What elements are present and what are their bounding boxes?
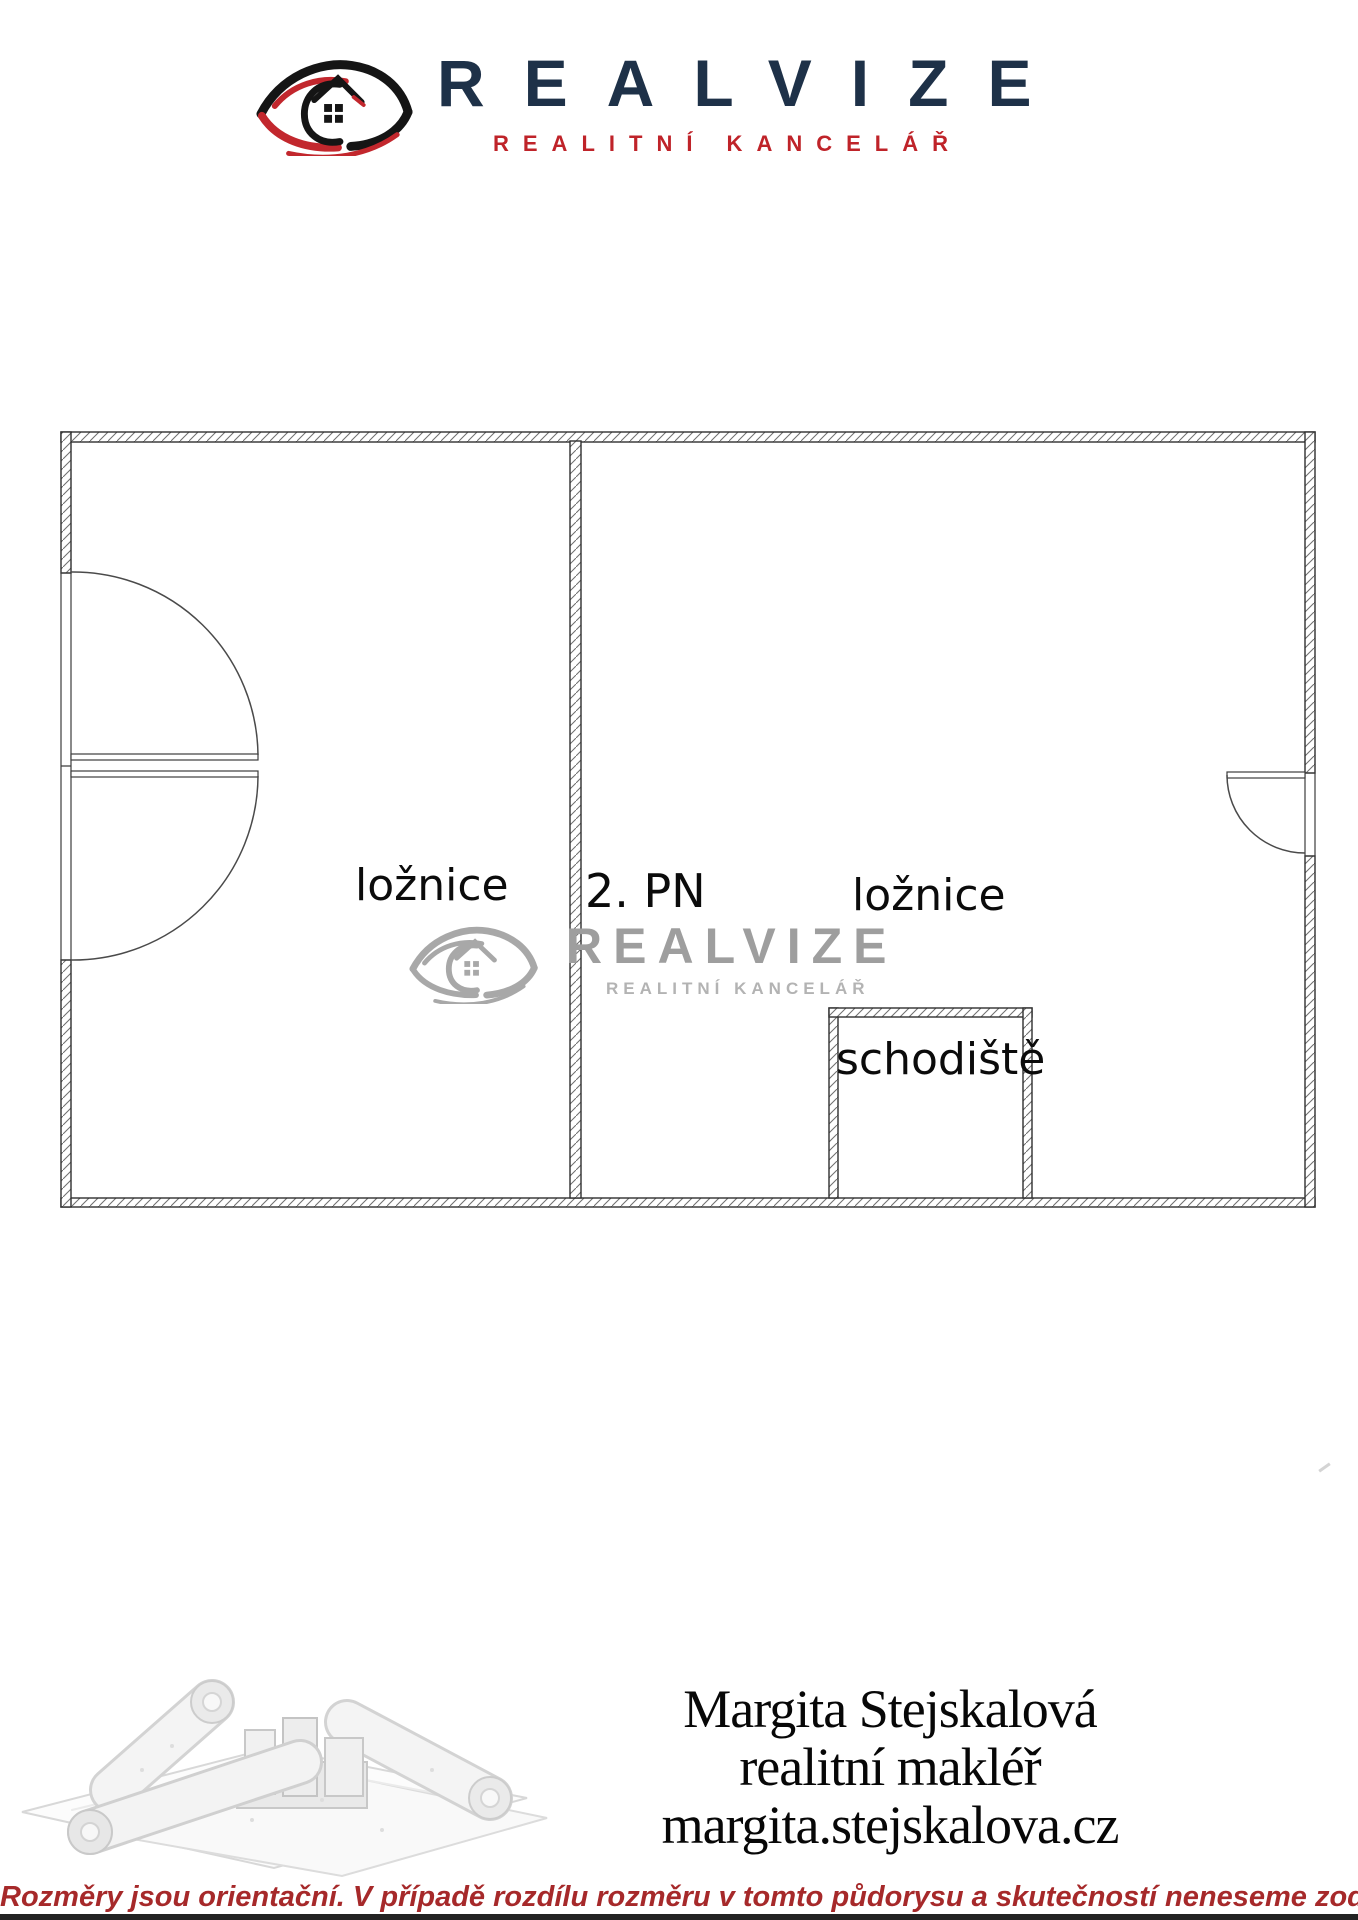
disclaimer-text: Rozměry jsou orientační. V případě rozdí… (0, 1881, 1358, 1913)
agent-name: Margita Stejskalová (520, 1680, 1260, 1738)
walls (61, 432, 1315, 1207)
floor-plan-drawing (55, 425, 1323, 1215)
door-left-lower (71, 771, 258, 960)
door-left-upper (71, 572, 258, 760)
stray-mark (1318, 1463, 1330, 1473)
realvize-eye-logo-icon (255, 56, 413, 156)
watermark-eye-icon (408, 924, 544, 1004)
room-label-loznice-left: ložnice (355, 864, 509, 908)
bottom-bar (0, 1914, 1358, 1920)
watermark-tagline: REALITNÍ KANCELÁŘ (606, 979, 870, 998)
agent-website: margita.stejskalova.cz (520, 1796, 1260, 1854)
brand-wordmark: REALVIZE (437, 50, 1070, 116)
floor-label: 2. PN (585, 868, 706, 914)
room-label-loznice-right: ložnice (852, 874, 1006, 918)
brand-tagline: REALITNÍ KANCELÁŘ (493, 132, 962, 156)
room-label-schodiste: schodiště (836, 1038, 1045, 1082)
agent-block: Margita Stejskalová realitní makléř marg… (520, 1680, 1260, 1854)
door-right (1227, 772, 1305, 853)
agent-role: realitní makléř (520, 1738, 1260, 1796)
watermark-wordmark: REALVIZE (566, 921, 898, 971)
blueprint-plans-image (12, 1650, 552, 1880)
